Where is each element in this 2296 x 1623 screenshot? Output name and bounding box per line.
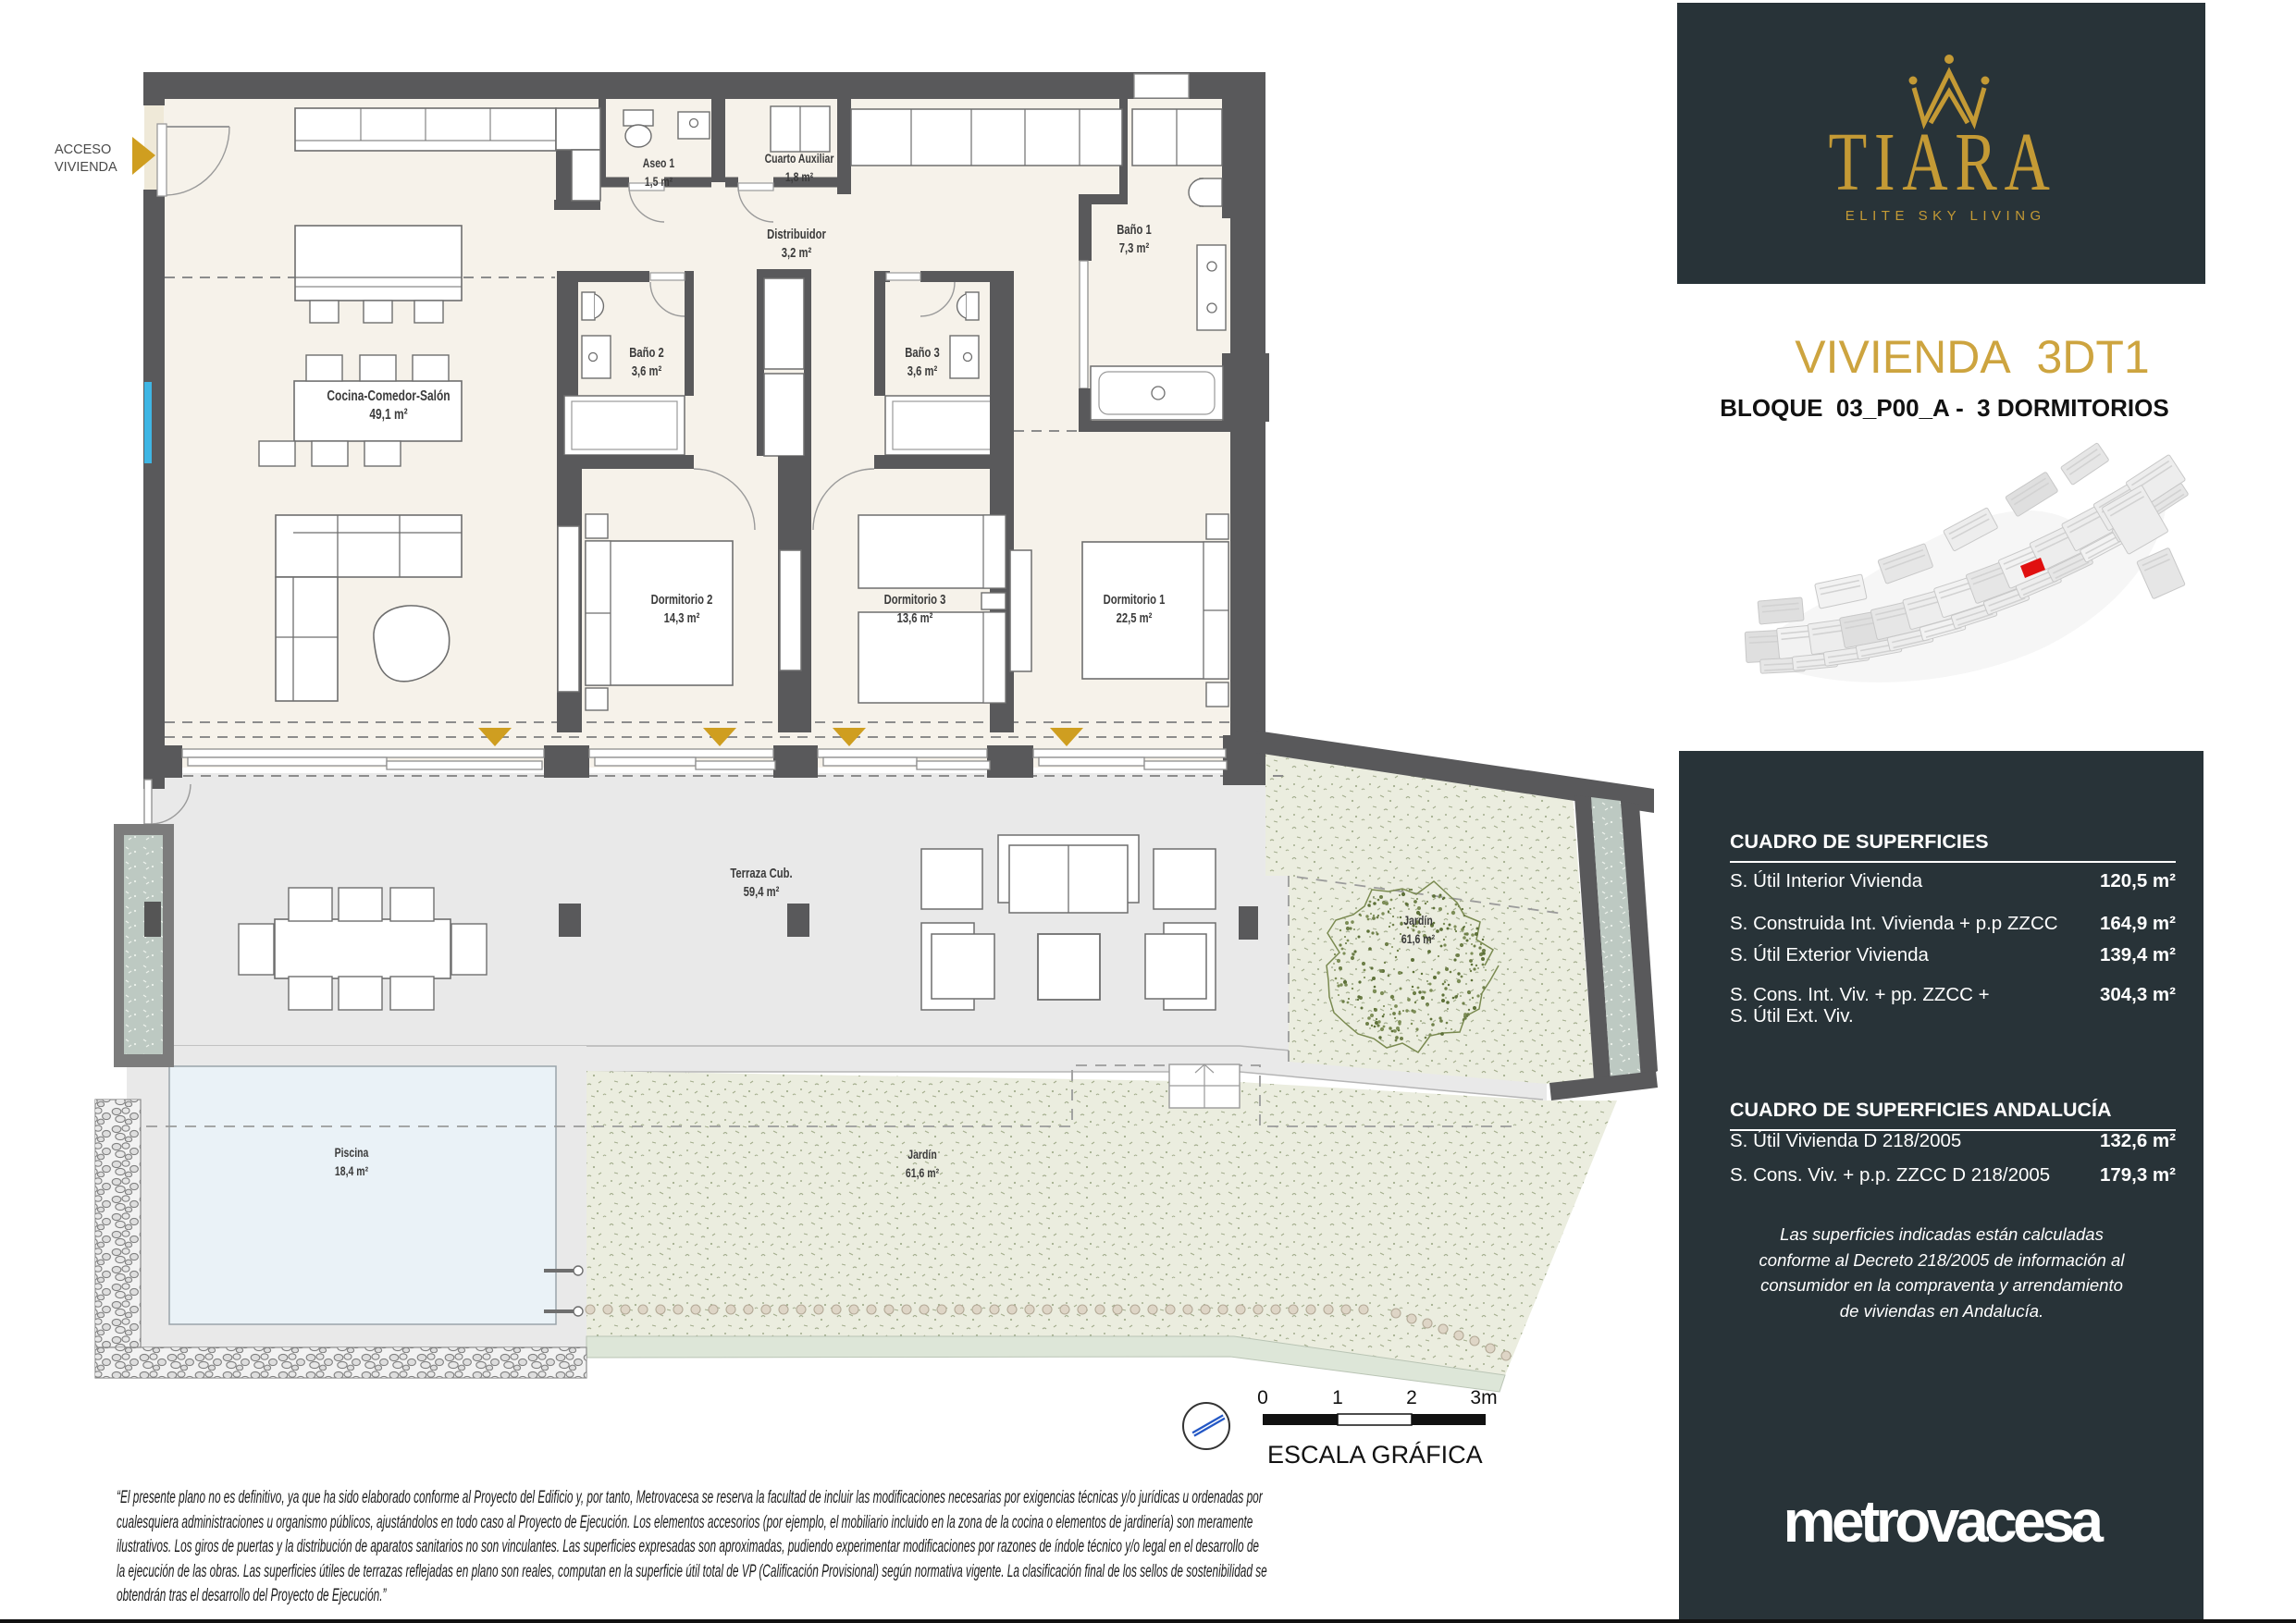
svg-text:1,8 m²: 1,8 m² [785,170,813,185]
svg-text:13,6 m²: 13,6 m² [897,609,933,625]
svg-text:Aseo 1: Aseo 1 [643,156,674,171]
svg-text:3,6 m²: 3,6 m² [632,363,662,378]
svg-text:Cuarto Auxiliar: Cuarto Auxiliar [765,152,834,166]
svg-text:3m: 3m [1470,1387,1497,1408]
svg-text:Dormitorio 1: Dormitorio 1 [1104,591,1166,607]
svg-text:Baño 1: Baño 1 [1117,221,1151,237]
svg-text:1: 1 [1332,1387,1343,1408]
svg-text:14,3 m²: 14,3 m² [664,609,700,625]
svg-text:49,1 m²: 49,1 m² [369,405,408,422]
svg-text:3,6 m²: 3,6 m² [907,363,938,378]
svg-text:0: 0 [1257,1387,1268,1408]
svg-text:Baño 2: Baño 2 [629,344,663,360]
svg-text:7,3 m²: 7,3 m² [1119,240,1150,255]
svg-text:Baño 3: Baño 3 [905,344,939,360]
svg-text:3,2 m²: 3,2 m² [782,244,812,260]
svg-text:Dormitorio 3: Dormitorio 3 [884,591,946,607]
svg-text:Dormitorio 2: Dormitorio 2 [651,591,713,607]
svg-text:Distribuidor: Distribuidor [767,226,826,241]
svg-text:VIVIENDA: VIVIENDA [55,160,117,175]
svg-text:ACCESO: ACCESO [55,142,111,157]
svg-text:61,6 m²: 61,6 m² [906,1166,939,1181]
svg-text:TIARA: TIARA [1829,117,2057,208]
svg-text:Jardín: Jardín [907,1148,936,1162]
svg-text:18,4 m²: 18,4 m² [335,1164,368,1179]
svg-text:ESCALA GRÁFICA: ESCALA GRÁFICA [1267,1441,1483,1469]
svg-text:2: 2 [1406,1387,1417,1408]
svg-text:22,5 m²: 22,5 m² [1117,609,1153,625]
svg-text:61,6 m²: 61,6 m² [1401,932,1435,947]
svg-text:Jardín: Jardín [1403,914,1432,928]
svg-text:Terraza Cub.: Terraza Cub. [730,865,792,880]
svg-text:Cocina-Comedor-Salón: Cocina-Comedor-Salón [327,387,450,403]
svg-text:59,4 m²: 59,4 m² [744,883,780,899]
svg-text:Piscina: Piscina [335,1146,369,1161]
svg-text:1,5 m²: 1,5 m² [645,175,673,190]
